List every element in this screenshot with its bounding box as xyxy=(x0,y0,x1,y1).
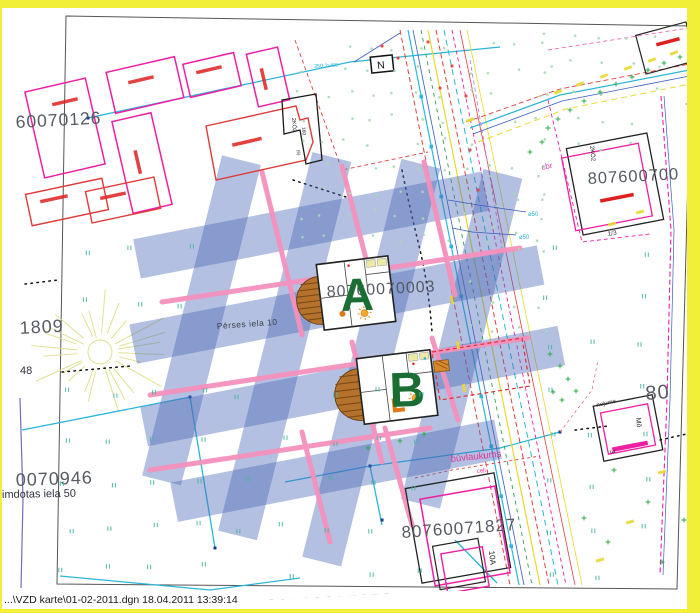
marker-b: B xyxy=(388,363,425,418)
marker-a: A xyxy=(340,268,375,321)
border-bottom xyxy=(0,609,700,613)
parcel-label-e: 80 xyxy=(645,381,671,405)
map-canvas[interactable]: N 60070126 1809 48 0070946 imdotas iela … xyxy=(0,0,700,613)
building-type-label: 2KŌ2 xyxy=(290,118,298,133)
utility-note: 350.2v/60 xyxy=(314,63,338,70)
parcel-label-w: 1809 xyxy=(19,316,64,338)
building-number-label: 160 xyxy=(300,127,307,136)
cad-map-window: N 60070126 1809 48 0070946 imdotas iela … xyxy=(0,0,700,613)
border-left xyxy=(0,0,2,613)
pipe-diameter-label: ø50 xyxy=(528,212,539,218)
parcel-label-48: 48 xyxy=(20,365,32,377)
border-right xyxy=(687,0,700,613)
building-note-label: (6) xyxy=(296,150,301,156)
house-number-label: 10A xyxy=(487,550,498,566)
celi-label: ceļi xyxy=(477,468,487,475)
border-top xyxy=(0,0,700,8)
north-label: N xyxy=(377,59,386,72)
street-label-sw: imdotas iela 50 xyxy=(2,488,76,501)
pipe-diameter-label: ø50 xyxy=(519,235,530,241)
status-bar-file-info: ...\VZD karte\01-02-2011.dgn 18.04.2011 … xyxy=(4,594,238,606)
building-type-label: Mō xyxy=(634,417,642,428)
parcel-label-sw: 0070946 xyxy=(15,467,93,490)
